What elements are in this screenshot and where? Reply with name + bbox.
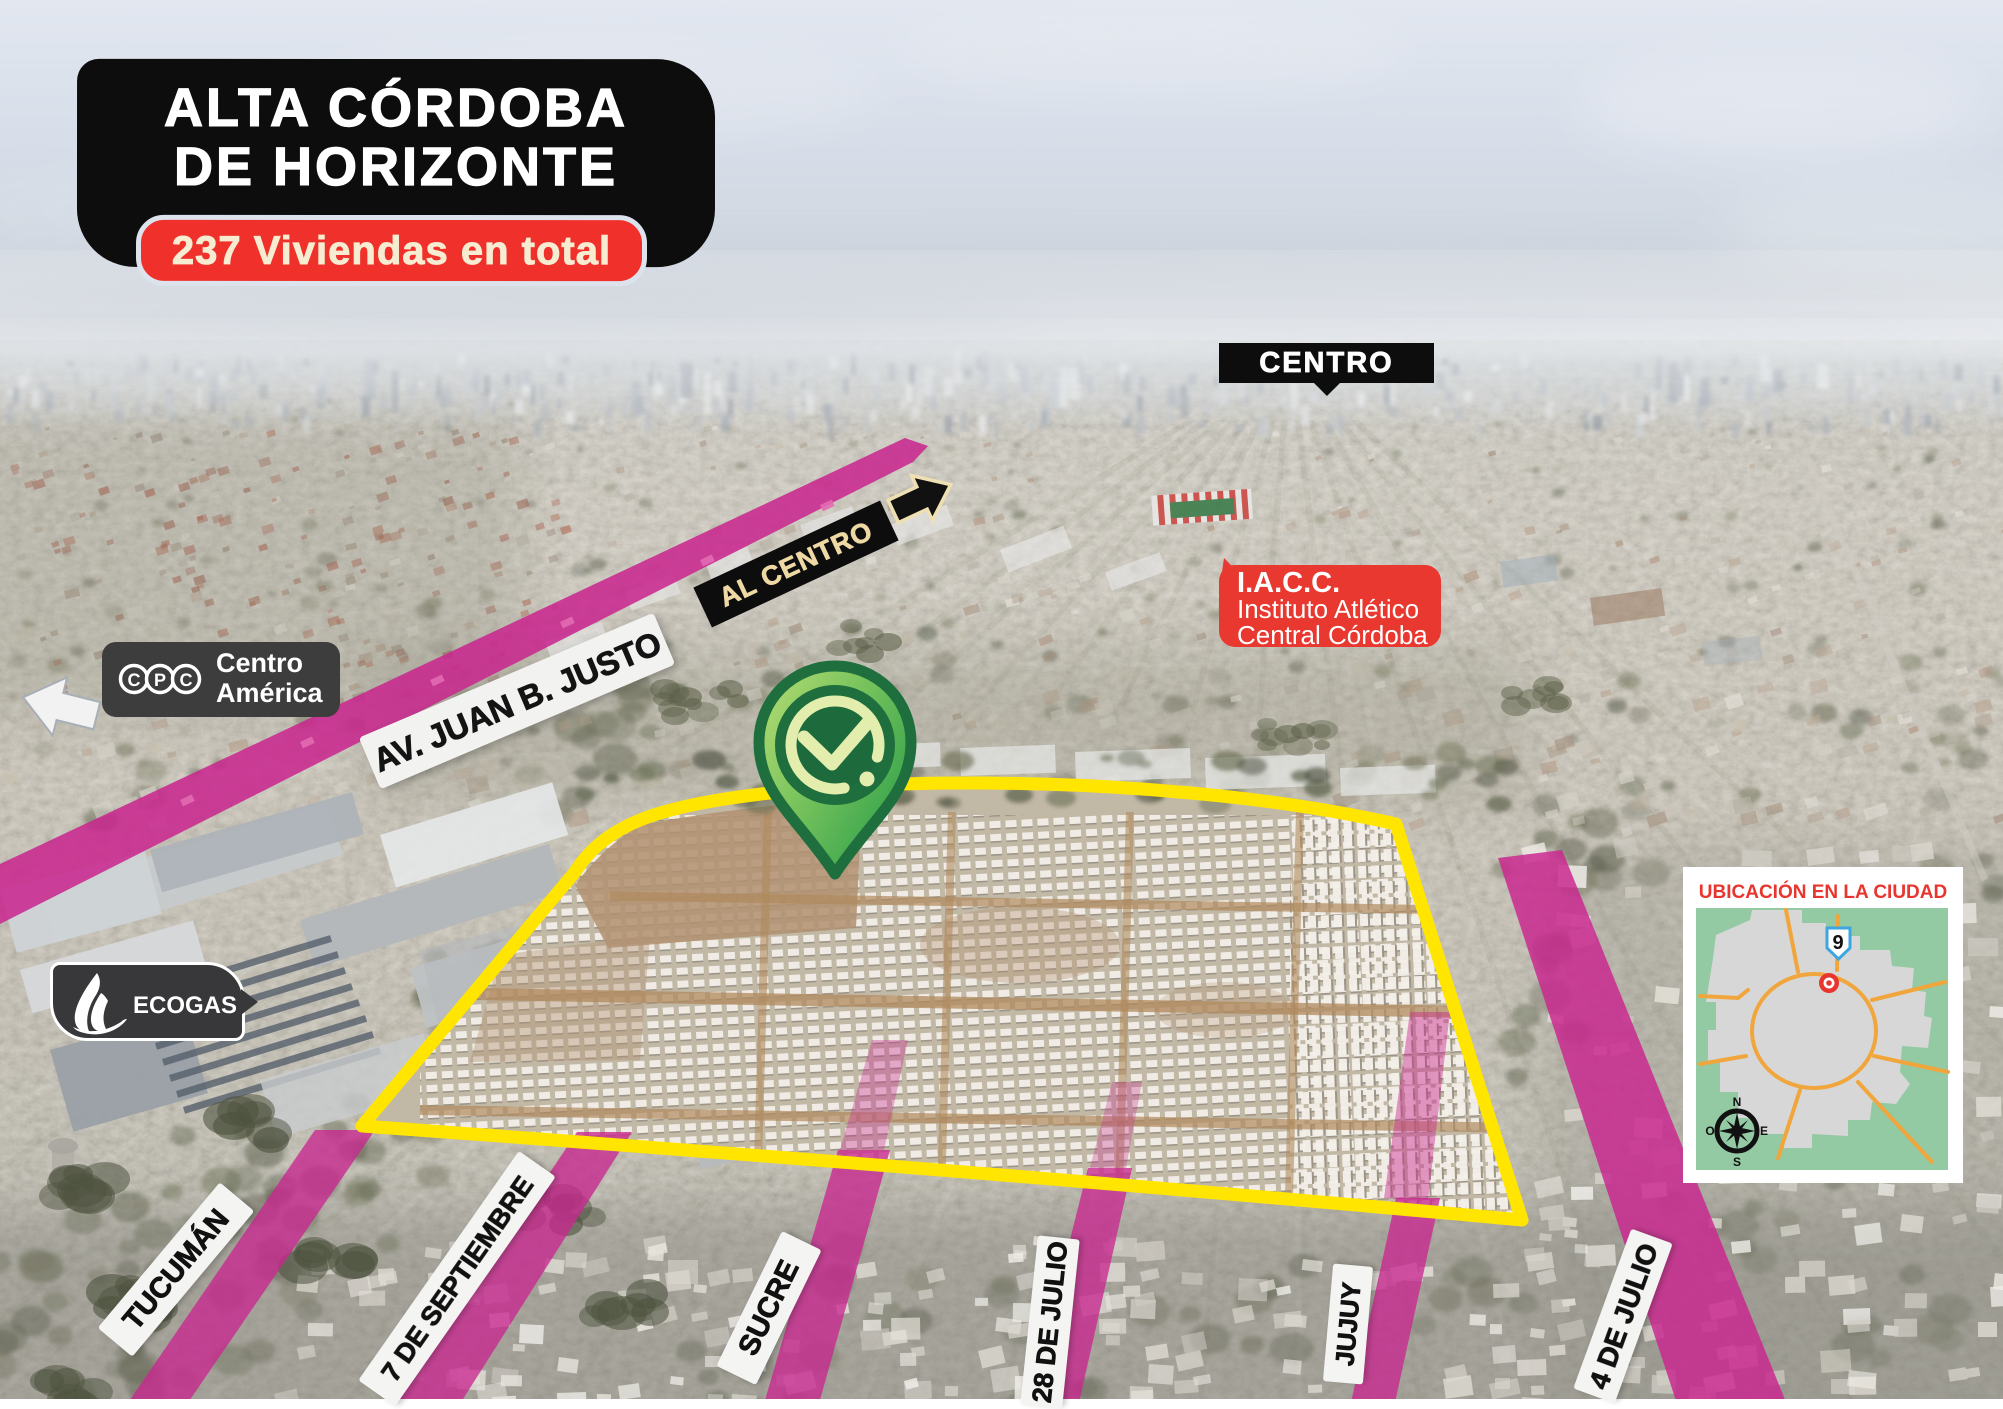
svg-text:N: N <box>1733 1095 1742 1109</box>
svg-text:UBICACIÓN EN LA CIUDAD: UBICACIÓN EN LA CIUDAD <box>1699 881 1947 903</box>
svg-text:S: S <box>1733 1155 1741 1169</box>
svg-text:9: 9 <box>1832 932 1843 954</box>
svg-text:C: C <box>127 670 140 690</box>
svg-text:O: O <box>1705 1124 1714 1138</box>
svg-text:E: E <box>1760 1124 1768 1138</box>
svg-text:C: C <box>179 670 192 690</box>
svg-text:P: P <box>154 670 166 690</box>
